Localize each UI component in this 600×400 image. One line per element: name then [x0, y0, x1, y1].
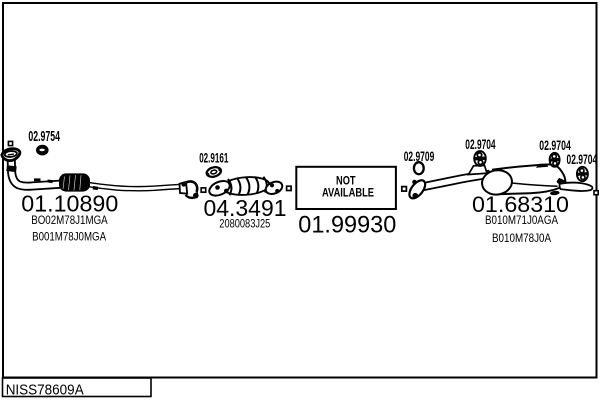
svg-text:02.9704: 02.9704: [567, 152, 598, 167]
svg-text:B001M78J0MGA: B001M78J0MGA: [32, 230, 106, 244]
svg-text:01.99930: 01.99930: [298, 212, 396, 239]
svg-text:02.9709: 02.9709: [404, 149, 435, 164]
svg-text:AVAILABLE: AVAILABLE: [322, 186, 374, 200]
svg-text:BO02M78J1MGA: BO02M78J1MGA: [31, 213, 108, 227]
svg-text:B010M71J0AGA: B010M71J0AGA: [485, 213, 558, 227]
svg-text:NISS78609A: NISS78609A: [6, 382, 84, 398]
svg-text:B010M78J0A: B010M78J0A: [492, 231, 551, 245]
svg-text:02.9161: 02.9161: [199, 151, 228, 166]
svg-text:02.9704: 02.9704: [539, 138, 571, 153]
svg-text:2080083J25: 2080083J25: [219, 217, 270, 231]
svg-text:02.9704: 02.9704: [465, 137, 496, 152]
svg-text:02.9754: 02.9754: [28, 129, 60, 145]
